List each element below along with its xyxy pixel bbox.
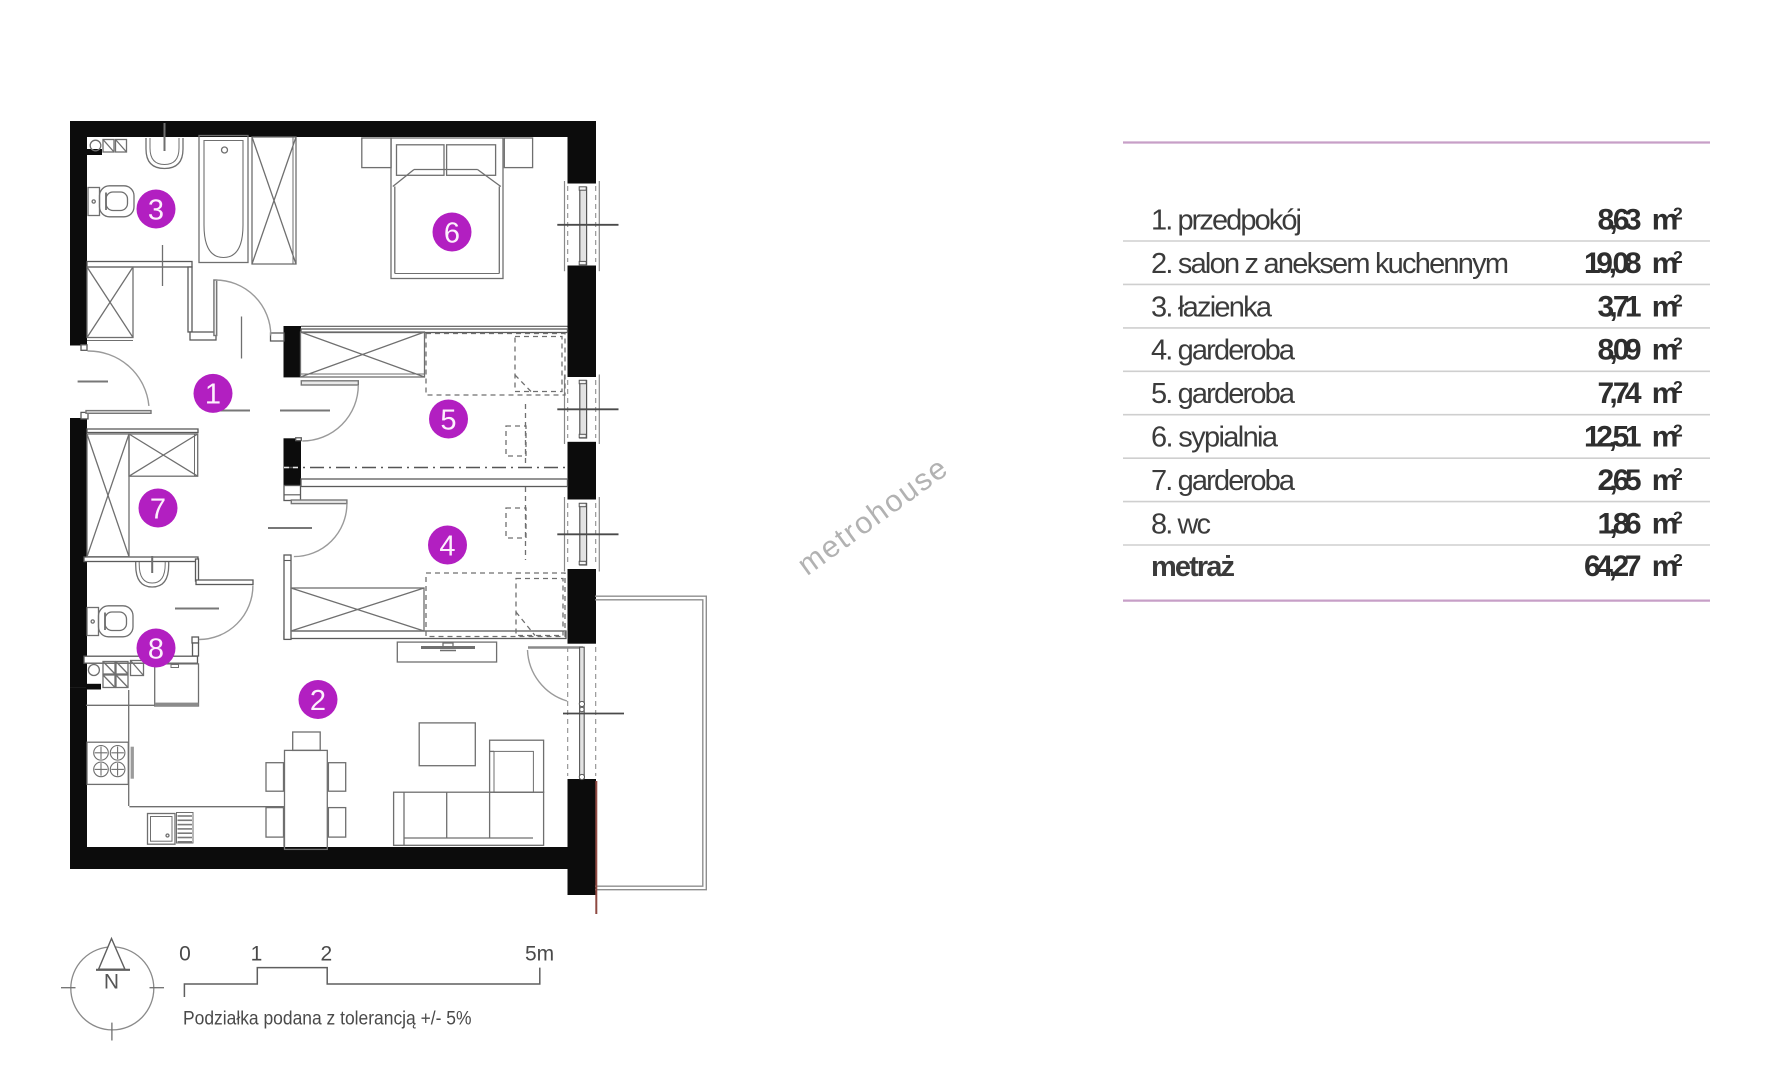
svg-text:2: 2 <box>1673 247 1683 267</box>
svg-text:5. garderoba: 5. garderoba <box>1151 378 1296 410</box>
svg-text:3,71: 3,71 <box>1598 290 1642 323</box>
svg-text:Podziałka podana z tolerancją: Podziałka podana z tolerancją +/- 5% <box>183 1009 472 1030</box>
svg-text:metraż: metraż <box>1151 551 1235 583</box>
svg-text:19,08: 19,08 <box>1584 247 1642 280</box>
svg-text:2: 2 <box>1673 550 1683 570</box>
svg-text:2: 2 <box>1673 334 1683 354</box>
svg-text:2: 2 <box>1673 421 1683 441</box>
svg-text:4: 4 <box>439 530 455 562</box>
svg-text:4. garderoba: 4. garderoba <box>1151 335 1296 367</box>
svg-text:2: 2 <box>1673 377 1683 397</box>
svg-text:2. salon z aneksem kuchennym: 2. salon z aneksem kuchennym <box>1151 248 1509 280</box>
svg-text:64,27: 64,27 <box>1584 550 1642 583</box>
svg-text:3. łazienka: 3. łazienka <box>1151 291 1273 323</box>
svg-text:6: 6 <box>444 217 460 249</box>
svg-text:2,65: 2,65 <box>1598 464 1642 497</box>
svg-text:2: 2 <box>1673 203 1683 223</box>
svg-text:2: 2 <box>321 943 333 966</box>
svg-text:1: 1 <box>251 943 263 966</box>
svg-text:8. wc: 8. wc <box>1151 508 1211 540</box>
svg-text:8,09: 8,09 <box>1598 334 1642 367</box>
svg-text:8,63: 8,63 <box>1598 203 1642 236</box>
svg-text:2: 2 <box>310 685 326 717</box>
svg-text:1. przedpokój: 1. przedpokój <box>1151 204 1302 236</box>
svg-text:0: 0 <box>179 943 191 966</box>
svg-text:3: 3 <box>148 194 164 226</box>
svg-text:5m: 5m <box>525 943 554 966</box>
svg-text:7. garderoba: 7. garderoba <box>1151 465 1296 497</box>
svg-text:1,86: 1,86 <box>1598 507 1642 540</box>
svg-text:5: 5 <box>440 404 456 436</box>
svg-text:12,51: 12,51 <box>1584 421 1642 454</box>
svg-text:8: 8 <box>148 633 164 665</box>
svg-text:N: N <box>104 971 119 994</box>
svg-text:2: 2 <box>1673 464 1683 484</box>
svg-text:6. sypialnia: 6. sypialnia <box>1151 422 1279 454</box>
svg-text:7: 7 <box>150 493 166 525</box>
svg-text:2: 2 <box>1673 290 1683 310</box>
svg-text:7,74: 7,74 <box>1598 377 1642 410</box>
svg-text:1: 1 <box>205 379 221 411</box>
svg-text:2: 2 <box>1673 507 1683 527</box>
